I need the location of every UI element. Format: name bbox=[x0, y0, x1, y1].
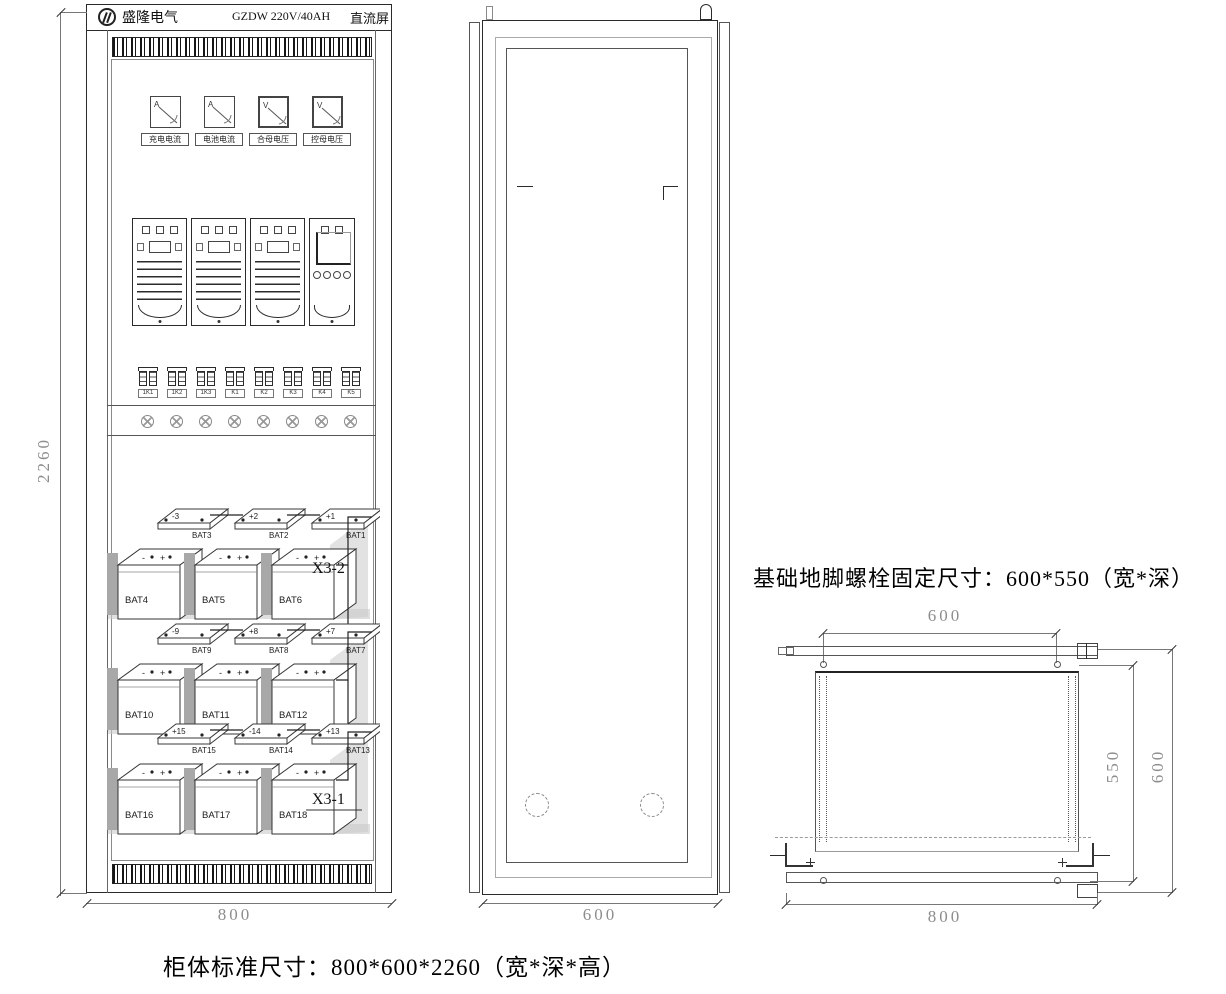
battery-shadow bbox=[261, 668, 272, 730]
breaker-label: 1K3 bbox=[196, 389, 216, 398]
anchor-bolt-caption: 基础地脚螺栓固定尺寸：600*550（宽*深） bbox=[753, 561, 1194, 593]
door-mark bbox=[663, 186, 664, 200]
terminal-dot bbox=[318, 633, 321, 636]
module-handle bbox=[138, 305, 182, 318]
connector-label: X3-1 bbox=[312, 791, 345, 808]
terminal-dot bbox=[277, 633, 280, 636]
terminal-dot bbox=[164, 518, 167, 521]
terminal-dot bbox=[150, 555, 153, 558]
brand-logo-icon bbox=[98, 8, 116, 26]
terminal-dot bbox=[277, 733, 280, 736]
top-bracket bbox=[486, 6, 493, 20]
indicator-lamp bbox=[199, 415, 212, 428]
battery-label-front: BAT10 bbox=[125, 710, 153, 721]
terminal-dot bbox=[304, 555, 307, 558]
breaker-pole bbox=[178, 371, 186, 386]
polarity-mark: + bbox=[314, 668, 319, 678]
dim-front-width-text: 800 bbox=[200, 905, 270, 925]
battery-front-face bbox=[118, 565, 180, 619]
battery-label-back: BAT1 bbox=[346, 531, 366, 540]
terminal-dot bbox=[150, 670, 153, 673]
door-mark bbox=[517, 186, 533, 187]
polarity-mark: - bbox=[142, 553, 145, 563]
dim-line-height bbox=[60, 12, 61, 896]
bottom-channel-rail bbox=[786, 872, 1098, 883]
rail-clamp bbox=[1077, 884, 1098, 898]
breaker-pole bbox=[236, 371, 244, 386]
connector-label: X3-2 bbox=[312, 560, 345, 577]
indicator-lamp bbox=[170, 415, 183, 428]
indicator-lamp bbox=[141, 415, 154, 428]
foot-cross-mark bbox=[806, 858, 815, 867]
circuit-breaker: K3 bbox=[281, 367, 305, 398]
dim-line-plan-width bbox=[786, 904, 1098, 905]
battery-lid-edge bbox=[235, 638, 287, 644]
cabinet-size-caption: 柜体标准尺寸：800*600*2260（宽*深*高） bbox=[163, 948, 626, 982]
meter-face: V bbox=[260, 98, 289, 128]
dim-plan-depth-text: 600 bbox=[1148, 736, 1168, 796]
circuit-breaker: K4 bbox=[310, 367, 334, 398]
polarity-mark: + bbox=[160, 668, 165, 678]
battery-front-face bbox=[118, 780, 180, 834]
breaker-pole bbox=[313, 371, 321, 386]
battery-shadow bbox=[184, 553, 195, 615]
foot-bracket-right bbox=[1066, 843, 1094, 867]
battery-shadow bbox=[261, 553, 272, 615]
breaker-poles bbox=[252, 371, 276, 386]
side-panel-edge-right bbox=[719, 22, 730, 893]
polarity-mark: - bbox=[142, 768, 145, 778]
product-name: 直流屏 bbox=[350, 8, 389, 27]
rail-clamp-line bbox=[1086, 643, 1087, 659]
indicator-lamp bbox=[315, 415, 328, 428]
circuit-breaker: K1 bbox=[223, 367, 247, 398]
battery-label-back: BAT7 bbox=[346, 646, 366, 655]
polarity-mark: + bbox=[237, 668, 242, 678]
terminal-dot bbox=[322, 670, 325, 673]
panel-divider bbox=[107, 435, 376, 436]
breaker-pole bbox=[284, 371, 292, 386]
polarity-mark: + bbox=[314, 768, 319, 778]
battery-shadow bbox=[184, 668, 195, 730]
battery-shadow bbox=[107, 553, 118, 615]
polarity-mark: - bbox=[219, 768, 222, 778]
dim-plan-width-text: 800 bbox=[910, 907, 980, 927]
indicator-lamp bbox=[228, 415, 241, 428]
monitor-buttons bbox=[313, 271, 351, 279]
terminal-label: +15 bbox=[172, 727, 186, 736]
breaker-poles bbox=[281, 371, 305, 386]
battery-label-back: BAT15 bbox=[192, 746, 216, 755]
module-indicators bbox=[142, 226, 178, 234]
bottom-vent-grille bbox=[112, 864, 372, 884]
terminal-dot bbox=[304, 670, 307, 673]
breaker-poles bbox=[165, 371, 189, 386]
breaker-poles bbox=[223, 371, 247, 386]
monitor-module bbox=[309, 218, 355, 326]
breaker-pole bbox=[197, 371, 205, 386]
mounting-rail-right bbox=[1068, 676, 1076, 842]
battery-lid-edge bbox=[312, 738, 364, 744]
panel-meter: V bbox=[312, 96, 343, 128]
battery-shadow bbox=[261, 768, 272, 830]
dim-ext bbox=[1090, 881, 1133, 882]
dim-side-depth-text: 600 bbox=[565, 905, 635, 925]
terminal-dot bbox=[227, 770, 230, 773]
battery-label-back: BAT13 bbox=[346, 746, 370, 755]
terminal-dot bbox=[164, 633, 167, 636]
battery-lid-edge bbox=[312, 523, 364, 529]
terminal-label: +2 bbox=[249, 512, 259, 521]
dim-line-side-depth bbox=[482, 903, 718, 904]
top-channel-rail bbox=[786, 646, 1098, 656]
dim-bolt-span-text: 600 bbox=[910, 606, 980, 626]
cable-gland-hole bbox=[640, 793, 664, 817]
side-door-outline bbox=[506, 48, 688, 863]
foot-line bbox=[1094, 855, 1110, 856]
meter-label: 充电电流 bbox=[141, 133, 189, 146]
door-mark bbox=[663, 186, 678, 187]
terminal-label: +8 bbox=[249, 627, 259, 636]
cad-drawing-canvas: 盛隆电气 GZDW 220V/40AH 直流屏 A充电电流A电池电流V合母电压V… bbox=[0, 0, 1226, 994]
dim-height-text: 2260 bbox=[34, 425, 54, 495]
battery-compartment: -3BAT3+2BAT2+1BAT1-+BAT4-+BAT5-+BAT6X3-2… bbox=[100, 448, 380, 862]
panel-meter: V bbox=[258, 96, 289, 128]
anchor-bolt bbox=[820, 661, 827, 668]
polarity-mark: + bbox=[237, 553, 242, 563]
terminal-label: -14 bbox=[249, 727, 261, 736]
breaker-label: 1K1 bbox=[138, 389, 158, 398]
meter-face: V bbox=[314, 98, 343, 128]
polarity-mark: + bbox=[160, 768, 165, 778]
indicator-lamp bbox=[344, 415, 357, 428]
terminal-label: +7 bbox=[326, 627, 336, 636]
foot-cross-mark bbox=[1058, 858, 1067, 867]
dim-line-bolt-depth bbox=[1133, 665, 1134, 882]
polarity-mark: + bbox=[160, 553, 165, 563]
terminal-dot bbox=[318, 518, 321, 521]
monitor-display bbox=[316, 232, 351, 265]
breaker-pole bbox=[207, 371, 215, 386]
battery-label-front: BAT12 bbox=[279, 710, 307, 721]
side-panel-edge-left bbox=[469, 22, 480, 893]
polarity-mark: - bbox=[219, 553, 222, 563]
charger-module bbox=[250, 218, 305, 326]
battery-lid-edge bbox=[312, 638, 364, 644]
panel-meter: A bbox=[150, 96, 181, 128]
rail-clamp bbox=[778, 647, 794, 655]
breaker-label: K4 bbox=[312, 389, 332, 398]
battery-shadow bbox=[184, 768, 195, 830]
model-code: GZDW 220V/40AH bbox=[232, 9, 330, 24]
terminal-dot bbox=[354, 633, 357, 636]
polarity-mark: - bbox=[296, 553, 299, 563]
polarity-mark: - bbox=[142, 668, 145, 678]
battery-front-face bbox=[118, 680, 180, 734]
terminal-label: +1 bbox=[326, 512, 336, 521]
polarity-mark: - bbox=[296, 668, 299, 678]
terminal-dot bbox=[200, 518, 203, 521]
breaker-pole bbox=[323, 371, 331, 386]
breaker-label: K1 bbox=[225, 389, 245, 398]
breaker-pole bbox=[342, 371, 350, 386]
indicator-lamp bbox=[257, 415, 270, 428]
terminal-dot bbox=[200, 733, 203, 736]
polarity-mark: - bbox=[219, 668, 222, 678]
battery-lid-edge bbox=[158, 738, 210, 744]
battery-label-front: BAT4 bbox=[125, 595, 148, 606]
battery-front-face bbox=[195, 780, 257, 834]
circuit-breaker: 1K2 bbox=[165, 367, 189, 398]
meter-label: 合母电压 bbox=[249, 133, 297, 146]
indicator-lamp bbox=[286, 415, 299, 428]
dim-ext bbox=[60, 12, 87, 13]
terminal-dot bbox=[241, 633, 244, 636]
panel-meter: A bbox=[204, 96, 235, 128]
circuit-breaker: 1K3 bbox=[194, 367, 218, 398]
terminal-dot bbox=[245, 770, 248, 773]
anchor-bolt bbox=[1054, 661, 1061, 668]
battery-label-back: BAT8 bbox=[269, 646, 289, 655]
charger-module bbox=[132, 218, 187, 326]
breaker-pole bbox=[226, 371, 234, 386]
breaker-poles bbox=[136, 371, 160, 386]
battery-front-face bbox=[195, 565, 257, 619]
dim-ext bbox=[1098, 892, 1172, 893]
terminal-dot bbox=[245, 555, 248, 558]
battery-label-front: BAT16 bbox=[125, 810, 153, 821]
meter-face: A bbox=[151, 97, 180, 127]
battery-shadow bbox=[107, 768, 118, 830]
dim-ext bbox=[1079, 665, 1133, 666]
terminal-dot bbox=[227, 555, 230, 558]
terminal-dot bbox=[168, 555, 171, 558]
terminal-dot bbox=[277, 518, 280, 521]
meter-face: A bbox=[205, 97, 234, 127]
terminal-label: -3 bbox=[172, 512, 180, 521]
breaker-pole bbox=[265, 371, 273, 386]
breaker-label: K2 bbox=[254, 389, 274, 398]
battery-label-front: BAT11 bbox=[202, 710, 230, 721]
module-display bbox=[149, 241, 171, 253]
charger-module bbox=[191, 218, 246, 326]
battery-lid-edge bbox=[235, 523, 287, 529]
battery-label-front: BAT5 bbox=[202, 595, 225, 606]
breaker-pole bbox=[294, 371, 302, 386]
dim-bolt-depth-text: 550 bbox=[1103, 736, 1123, 796]
battery-label-back: BAT3 bbox=[192, 531, 212, 540]
battery-shadow bbox=[107, 668, 118, 730]
breaker-label: 1K2 bbox=[167, 389, 187, 398]
battery-lid-edge bbox=[158, 523, 210, 529]
terminal-dot bbox=[200, 633, 203, 636]
foot-line bbox=[770, 855, 785, 856]
lifting-eye bbox=[700, 4, 712, 20]
dim-line-bolt-span bbox=[823, 633, 1057, 634]
circuit-breaker: K2 bbox=[252, 367, 276, 398]
battery-label-back: BAT2 bbox=[269, 531, 289, 540]
plan-cabinet-outline bbox=[815, 671, 1079, 852]
breaker-pole bbox=[149, 371, 157, 386]
dim-ext bbox=[1098, 649, 1172, 650]
meter-label: 电池电流 bbox=[195, 133, 243, 146]
circuit-breaker: 1K1 bbox=[136, 367, 160, 398]
cable-gland-hole bbox=[525, 793, 549, 817]
terminal-dot bbox=[354, 518, 357, 521]
terminal-dot bbox=[150, 770, 153, 773]
battery-label-front: BAT17 bbox=[202, 810, 230, 821]
terminal-dot bbox=[241, 733, 244, 736]
terminal-dot bbox=[322, 555, 325, 558]
battery-label-front: BAT6 bbox=[279, 595, 302, 606]
polarity-mark: - bbox=[296, 768, 299, 778]
terminal-label: +13 bbox=[326, 727, 340, 736]
meter-label: 控母电压 bbox=[303, 133, 351, 146]
dim-line-front-width bbox=[86, 903, 392, 904]
battery-label-back: BAT9 bbox=[192, 646, 212, 655]
rail-clamp bbox=[1077, 643, 1098, 659]
dim-line-depth bbox=[1172, 649, 1173, 893]
terminal-dot bbox=[245, 670, 248, 673]
breaker-pole bbox=[255, 371, 263, 386]
breaker-pole bbox=[139, 371, 147, 386]
breaker-poles bbox=[194, 371, 218, 386]
terminal-dot bbox=[168, 770, 171, 773]
terminal-dot bbox=[354, 733, 357, 736]
breaker-label: K5 bbox=[341, 389, 361, 398]
battery-lid-edge bbox=[235, 738, 287, 744]
top-vent-grille bbox=[112, 37, 372, 57]
dim-ext bbox=[60, 893, 87, 894]
terminal-dot bbox=[241, 518, 244, 521]
plan-dashed-line bbox=[775, 837, 1091, 838]
battery-label-back: BAT14 bbox=[269, 746, 293, 755]
breaker-pole bbox=[168, 371, 176, 386]
terminal-label: -9 bbox=[172, 627, 180, 636]
polarity-mark: + bbox=[237, 768, 242, 778]
breaker-pole bbox=[352, 371, 360, 386]
panel-divider bbox=[107, 405, 376, 406]
front-header-divider bbox=[86, 30, 392, 31]
mounting-rail-left bbox=[819, 676, 827, 842]
terminal-dot bbox=[227, 670, 230, 673]
circuit-breaker: K5 bbox=[339, 367, 363, 398]
terminal-dot bbox=[168, 670, 171, 673]
module-grille bbox=[137, 261, 182, 306]
breaker-label: K3 bbox=[283, 389, 303, 398]
terminal-dot bbox=[322, 770, 325, 773]
brand-name: 盛隆电气 bbox=[122, 7, 178, 27]
terminal-dot bbox=[304, 770, 307, 773]
battery-label-front: BAT18 bbox=[279, 810, 307, 821]
terminal-dot bbox=[318, 733, 321, 736]
breaker-poles bbox=[310, 371, 334, 386]
breaker-poles bbox=[339, 371, 363, 386]
battery-lid-edge bbox=[158, 638, 210, 644]
terminal-dot bbox=[164, 733, 167, 736]
